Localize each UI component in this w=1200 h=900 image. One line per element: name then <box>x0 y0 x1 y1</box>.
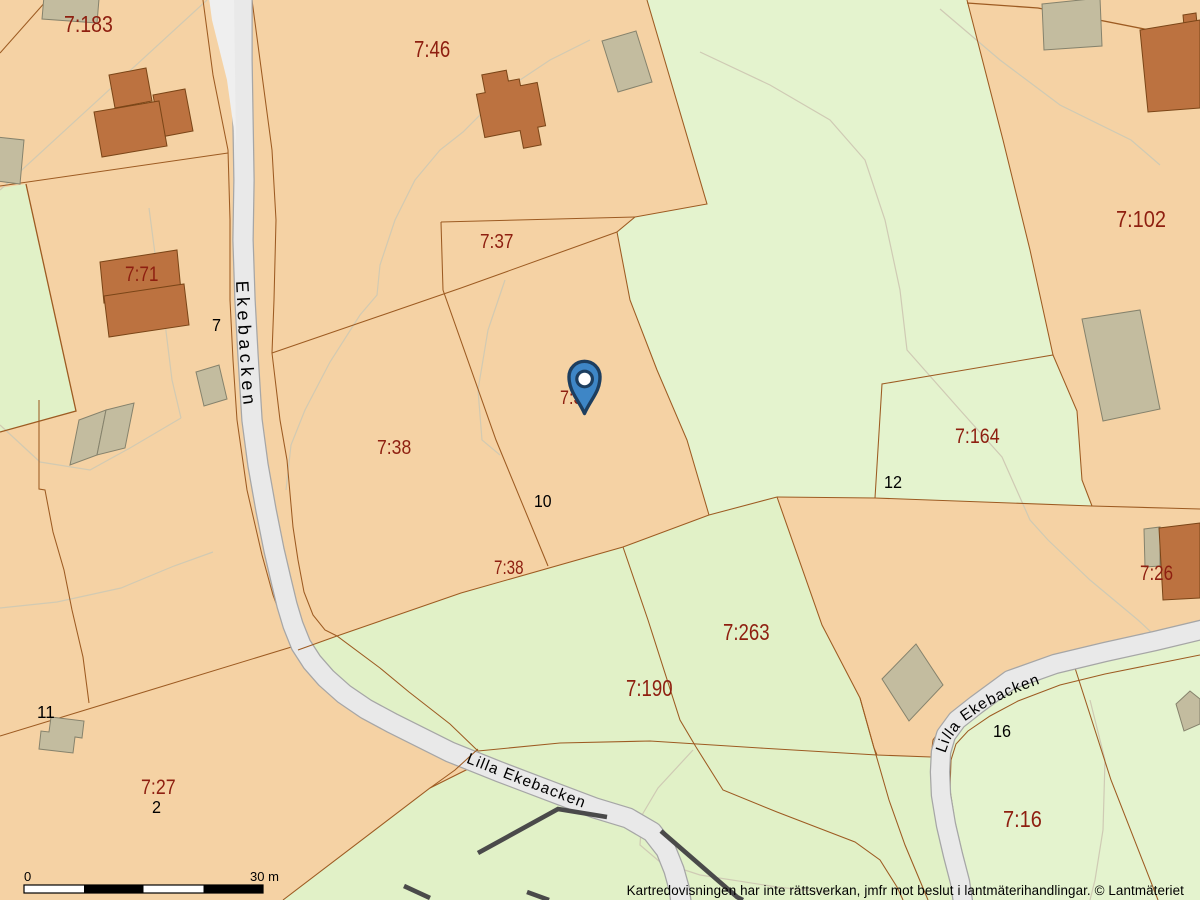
svg-text:7:71: 7:71 <box>125 264 159 287</box>
svg-text:30 m: 30 m <box>250 869 279 884</box>
svg-text:7:183: 7:183 <box>64 12 113 38</box>
svg-text:7:102: 7:102 <box>1116 206 1166 233</box>
svg-text:2: 2 <box>152 797 161 817</box>
svg-text:12: 12 <box>884 472 902 492</box>
svg-text:7:26: 7:26 <box>1140 562 1173 585</box>
svg-text:10: 10 <box>534 491 552 511</box>
svg-text:0: 0 <box>24 869 31 884</box>
svg-text:7:190: 7:190 <box>626 676 673 701</box>
svg-text:11: 11 <box>37 702 55 723</box>
svg-text:7: 7 <box>212 315 221 335</box>
svg-text:16: 16 <box>993 721 1011 741</box>
svg-text:7:263: 7:263 <box>723 620 770 645</box>
svg-text:7:164: 7:164 <box>955 425 1000 449</box>
svg-text:7:38: 7:38 <box>494 556 524 578</box>
svg-text:7:38: 7:38 <box>377 436 411 458</box>
svg-text:7:27: 7:27 <box>141 776 176 800</box>
svg-text:7:46: 7:46 <box>414 37 450 62</box>
svg-text:7:16: 7:16 <box>1003 806 1042 833</box>
svg-text:7:37: 7:37 <box>480 230 513 253</box>
svg-text:Kartredovisningen har inte rät: Kartredovisningen har inte rättsverkan, … <box>627 883 1185 898</box>
